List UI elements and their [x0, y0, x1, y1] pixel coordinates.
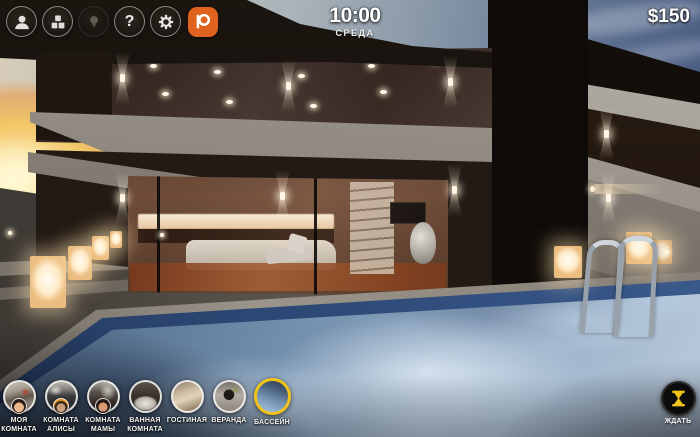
inventory-icon[interactable] [42, 6, 73, 37]
room-label: БАССЕЙН [246, 418, 298, 427]
avatar [11, 398, 27, 414]
glow-lamp [110, 231, 122, 248]
glow-lamp [554, 246, 582, 278]
pool-ladder-rail [613, 236, 658, 337]
wall-art [390, 202, 426, 224]
wall-beam-light [590, 186, 595, 192]
ceiling-light [162, 92, 169, 96]
profile-icon[interactable] [6, 6, 37, 37]
game-viewport: ? 10:00 СРЕДА $150 МОЯ КОМНАТА КОМНАТА А… [0, 0, 700, 437]
patreon-badge [188, 7, 218, 37]
cloud [597, 33, 700, 74]
living-room-glass [0, 0, 700, 437]
glass-frames [0, 0, 700, 437]
sofa [186, 240, 336, 270]
ceiling-light [214, 70, 221, 74]
glow-lamp [626, 232, 652, 264]
right-wing-lower-slab [0, 0, 700, 437]
pool-ladder-rail [580, 240, 626, 333]
right-wing-wall [0, 0, 700, 437]
sunset-glow [0, 55, 190, 295]
cloud [555, 0, 700, 42]
ceiling-light [380, 90, 387, 94]
right-wing-roof [0, 0, 700, 437]
money-display: $150 [648, 6, 690, 28]
canopy-slab [0, 0, 700, 437]
ceiling-light [298, 74, 305, 78]
right-wing-glass [0, 0, 700, 437]
house-roof [0, 0, 700, 437]
bulb-icon [85, 13, 103, 31]
wall-sconce [280, 192, 285, 200]
ceiling-light [368, 64, 375, 68]
wait-label: ЖДАТЬ [658, 418, 698, 425]
glow-lamp [652, 240, 672, 264]
clock-panel: 10:00 СРЕДА [290, 4, 420, 38]
person-icon [13, 13, 31, 31]
deck-step [0, 0, 700, 437]
room-thumb [3, 380, 36, 413]
hourglass-icon [669, 389, 688, 408]
avatar [53, 398, 69, 414]
glow-lamp [30, 256, 66, 308]
top-toolbar: ? [6, 5, 219, 38]
hint-bulb-icon[interactable] [78, 6, 109, 37]
room-thumb [254, 378, 291, 415]
wait-button[interactable]: ЖДАТЬ [658, 381, 698, 425]
patreon-icon[interactable] [186, 5, 219, 38]
ceiling-light [226, 100, 233, 104]
help-icon[interactable]: ? [114, 6, 145, 37]
house-pillar [0, 0, 700, 437]
weekday-display: СРЕДА [290, 28, 420, 38]
pool-water [0, 0, 700, 437]
vignette [0, 0, 700, 437]
deck-step [0, 0, 700, 437]
wall-sconce [452, 186, 457, 194]
room-button-pool[interactable]: БАССЕЙН [246, 380, 298, 427]
room-thumb [213, 380, 246, 413]
gear-icon [157, 13, 175, 31]
patreon-p-icon [193, 12, 212, 31]
cloud [634, 110, 700, 156]
wall-sconce [448, 78, 453, 86]
wall-sconce [604, 130, 609, 138]
ceiling-light [310, 104, 317, 108]
lounge-chair-back [286, 233, 308, 254]
upper-side-wall [0, 0, 700, 437]
path-light [8, 231, 12, 235]
wall-sconce [120, 194, 125, 202]
sky [0, 0, 700, 437]
kitchen-counter-light [138, 214, 334, 229]
ceiling-light [150, 64, 157, 68]
time-display: 10:00 [290, 4, 420, 28]
wall-sconce [120, 74, 125, 82]
right-wing-upper-slab [0, 0, 700, 437]
ground-floor-wall [0, 0, 700, 437]
boundary-wall [0, 0, 700, 437]
question-glyph: ? [125, 14, 135, 30]
wait-circle [661, 381, 696, 416]
pool-tile-band [0, 0, 700, 437]
path-light [160, 233, 164, 237]
lounge-chair [265, 246, 312, 265]
wall-sconce [286, 82, 291, 90]
balcony-slab [0, 0, 700, 437]
path-light [664, 250, 669, 255]
pool-coping [0, 0, 700, 437]
glow-lamp [68, 246, 92, 280]
room-thumb [87, 380, 120, 413]
glass-reflection [0, 0, 700, 437]
cloud [581, 74, 700, 123]
pool-deck [0, 0, 700, 437]
water-ripples [0, 0, 700, 437]
wood-floor [130, 263, 446, 291]
room-thumb [129, 380, 162, 413]
vase [410, 222, 436, 264]
kitchen-counter [138, 229, 334, 243]
interior-staircase [350, 182, 394, 274]
house-tower [0, 0, 700, 437]
ceiling-light [432, 58, 439, 62]
room-thumb [171, 380, 204, 413]
wall-sconce [606, 194, 611, 202]
avatar [95, 398, 111, 414]
room-thumb [45, 380, 78, 413]
settings-gear-icon[interactable] [150, 6, 181, 37]
upper-floor-glass [0, 0, 700, 437]
sunset-core-glow [0, 120, 90, 240]
glow-lamp [92, 236, 109, 260]
cubes-icon [49, 13, 67, 31]
